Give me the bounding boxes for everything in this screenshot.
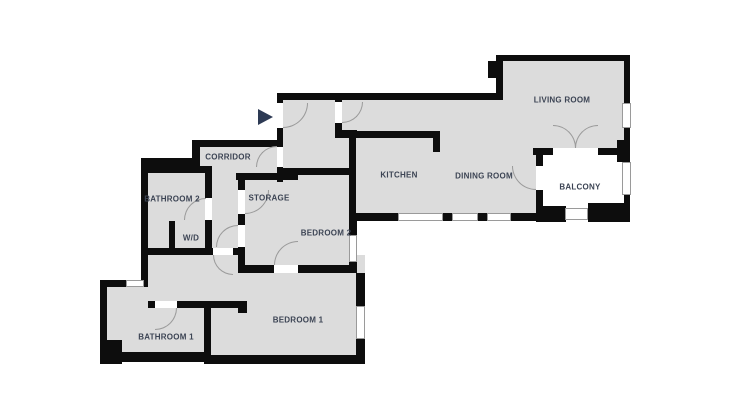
wall-living-top xyxy=(496,55,630,61)
wall-bedroom2-top xyxy=(283,168,356,175)
wall-dining-bottom xyxy=(349,213,543,221)
wall-kitchen-top xyxy=(356,131,440,138)
wall-bathroom1-bottom xyxy=(122,352,211,362)
room-label-balcony: BALCONY xyxy=(559,183,600,192)
room-label-bathroom-1: BATHROOM 1 xyxy=(138,333,194,342)
room-label-kitchen: KITCHEN xyxy=(380,171,417,180)
window-balcony-east xyxy=(622,162,631,195)
entry-arrow-icon xyxy=(258,109,273,125)
wall-southwest-chunk xyxy=(100,340,122,364)
room-label-storage: STORAGE xyxy=(248,194,289,203)
door-gap-entry-hallway xyxy=(335,102,342,123)
floor-balcony xyxy=(543,155,624,208)
wall-storage-west xyxy=(238,173,245,273)
wall-bathroom1-top-stub xyxy=(238,301,247,313)
wall-bathroom2-top xyxy=(148,166,212,173)
room-label-bathroom-2: BATHROOM 2 xyxy=(144,195,200,204)
door-gap-balcony-dining xyxy=(536,166,543,190)
wall-balcony-ne xyxy=(617,140,624,162)
room-label-bedroom-2: BEDROOM 2 xyxy=(301,229,352,238)
window-dining-south-2 xyxy=(487,213,511,221)
room-label-dining-room: DINING ROOM xyxy=(455,172,513,181)
wall-wd-bottom xyxy=(141,248,213,255)
wall-west-outer xyxy=(141,158,148,287)
door-gap-bathroom2 xyxy=(205,198,212,220)
wall-bathroom1-east xyxy=(204,308,211,358)
wall-bedroom1-bottom xyxy=(204,355,365,364)
window-dining-south-1 xyxy=(452,213,478,221)
wall-north-mid xyxy=(277,93,503,100)
wall-kitchen-nw xyxy=(335,130,357,138)
window-bedroom2-east xyxy=(349,235,357,262)
room-label-living-room: LIVING ROOM xyxy=(534,96,590,105)
window-kitchen-south xyxy=(398,213,443,221)
door-gap-hallway xyxy=(213,248,233,255)
wall-wd-divider xyxy=(169,221,175,255)
wall-balcony-se xyxy=(588,203,630,222)
floor-living-room xyxy=(503,61,624,98)
door-gap-corridor xyxy=(277,147,283,167)
window-bathroom1-north xyxy=(126,280,144,287)
window-living-east xyxy=(622,103,631,128)
window-balcony-south xyxy=(565,208,588,220)
door-gap-bedroom2 xyxy=(238,225,245,247)
wall-kitchen-west xyxy=(349,138,356,213)
window-bedroom1-east xyxy=(356,306,365,339)
door-gap-bedroom1-bedroom2 xyxy=(274,265,298,273)
door-gap-bathroom1 xyxy=(155,301,177,308)
wall-step-northwest xyxy=(141,158,200,166)
room-label-corridor: CORRIDOR xyxy=(205,153,250,162)
room-label-bedroom-1: BEDROOM 1 xyxy=(273,316,324,325)
door-gap-french-doors xyxy=(553,148,598,155)
door-gap-storage xyxy=(238,190,245,214)
room-label-wd: W/D xyxy=(183,234,199,243)
floor-plan: LIVING ROOM KITCHEN DINING ROOM BALCONY … xyxy=(0,0,736,414)
wall-corridor-top xyxy=(192,140,283,147)
wall-kitchen-stub xyxy=(433,131,440,152)
